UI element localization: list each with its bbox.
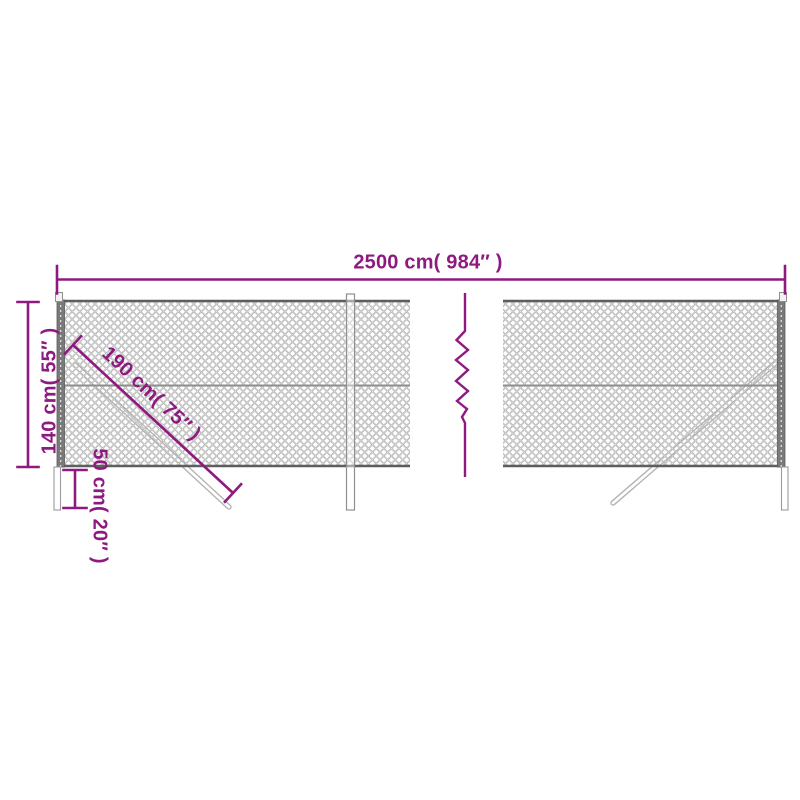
- dimension-post-depth: [64, 470, 87, 508]
- post-right-underground: [782, 467, 789, 510]
- break-zigzag-line: [456, 293, 468, 477]
- label-height: 140 cm( 55″ ): [39, 328, 62, 455]
- end-band-right: [778, 300, 786, 467]
- post-left-underground: [54, 467, 61, 510]
- mesh-panel-left: [57, 300, 410, 467]
- fence-dimension-diagram: 2500 cm( 984″ ) 140 cm( 55″ ) 190 cm( 75…: [0, 0, 800, 800]
- label-total-width: 2500 cm( 984″ ): [353, 252, 502, 275]
- dimension-height: [18, 302, 39, 467]
- diagram-linework: [0, 0, 800, 800]
- post-middle: [347, 294, 355, 510]
- mesh-panel-right: [503, 300, 785, 467]
- label-post-depth: 50 cm( 20″ ): [88, 448, 111, 563]
